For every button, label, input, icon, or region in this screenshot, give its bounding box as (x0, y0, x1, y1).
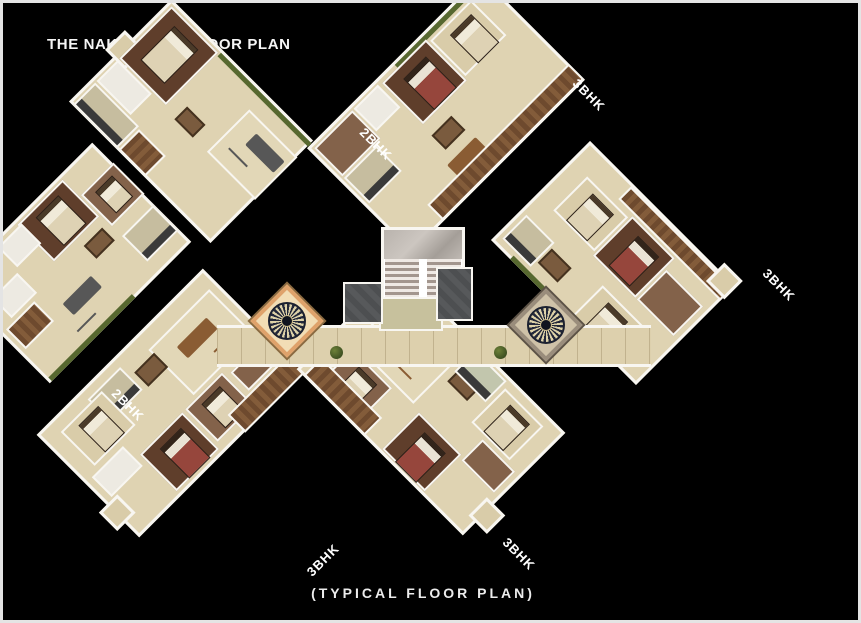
bed (608, 236, 659, 287)
bed (450, 14, 499, 63)
medallion-hub (538, 317, 555, 334)
stair-flight-left (385, 259, 419, 297)
bed (483, 405, 530, 452)
medallion-hub (279, 313, 296, 330)
plant (494, 346, 507, 359)
bed (160, 428, 211, 479)
dining-table (174, 107, 205, 138)
bed (403, 56, 457, 110)
bed (36, 195, 87, 246)
lift-left (343, 282, 383, 324)
bed (140, 26, 198, 84)
dining-table (84, 228, 115, 259)
balcony-tip (468, 497, 505, 534)
bed (78, 406, 125, 453)
kitchen-counter (76, 99, 123, 146)
kitchen-counter (142, 225, 176, 259)
bed (395, 432, 446, 483)
unit-label-3bhk-right: 3BHK (760, 266, 798, 304)
stair-landing (381, 227, 465, 262)
kitchen (122, 205, 179, 262)
unit-label-3bhk-top-right: 3BHK (570, 76, 608, 114)
sofa (63, 276, 103, 316)
floor-plan-canvas: THE NAKSHATRA FLOOR PLAN (0, 0, 861, 623)
bedroom (382, 412, 461, 491)
balcony-tip (99, 494, 136, 531)
unit-label-3bhk-bottom-right: 3BHK (500, 535, 538, 573)
plant (330, 346, 343, 359)
dining-table (432, 116, 466, 150)
plan-caption: (TYPICAL FLOOR PLAN) (311, 585, 535, 601)
lift-right (436, 267, 473, 321)
bed (95, 175, 133, 213)
lift-lobby (379, 297, 443, 331)
bed (566, 193, 614, 241)
kitchen-counter (364, 165, 399, 200)
unit-label-3bhk-bottom-left: 3BHK (304, 541, 342, 579)
